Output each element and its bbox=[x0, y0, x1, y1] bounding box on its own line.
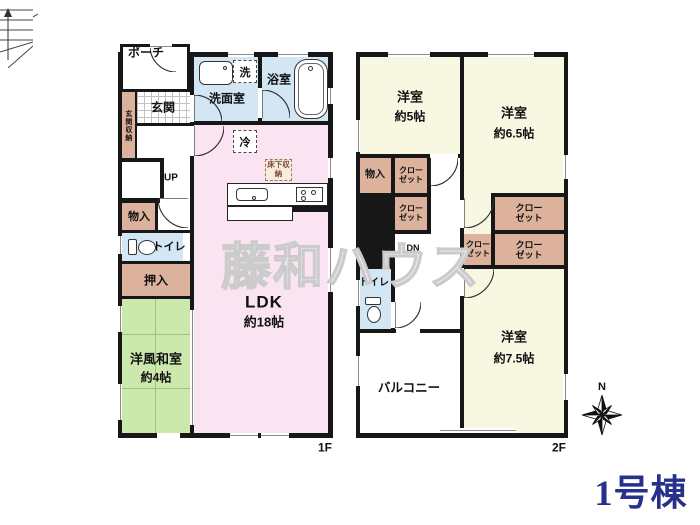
label-ldk-size: 約18帖 bbox=[244, 316, 284, 331]
door-arc bbox=[262, 90, 290, 118]
compass-north-label: N bbox=[598, 381, 606, 393]
label-storage-1f: 物入 bbox=[128, 211, 150, 223]
label-toilet-2f: トイレ bbox=[359, 277, 389, 288]
underfloor-storage-box: 床下収納 bbox=[265, 159, 292, 181]
compass-rose-icon bbox=[580, 393, 624, 437]
door-arc bbox=[464, 198, 494, 228]
label-oshiire: 押入 bbox=[144, 274, 168, 287]
tatami-line bbox=[122, 388, 190, 389]
room-yoshitsu-65 bbox=[464, 57, 564, 193]
toilet-bowl-icon bbox=[367, 306, 381, 323]
window bbox=[118, 306, 122, 332]
label-yoshitsu-75: 洋室 bbox=[501, 331, 527, 346]
burner-icon bbox=[301, 196, 306, 201]
door-arc bbox=[430, 158, 458, 186]
window bbox=[328, 88, 333, 104]
faucet-icon bbox=[308, 66, 313, 71]
door-arc bbox=[395, 302, 421, 328]
label-porch: ポーチ bbox=[128, 46, 164, 59]
label-ldk: LDK bbox=[245, 292, 283, 311]
floor-label-2f: 2F bbox=[552, 441, 566, 454]
label-washitsu: 洋風和室 bbox=[130, 353, 182, 368]
label-stairs-down: DN bbox=[407, 243, 420, 253]
label-washitsu-size: 約4帖 bbox=[141, 371, 172, 384]
label-closet: クローゼット bbox=[514, 240, 544, 260]
label-bath: 浴室 bbox=[267, 73, 291, 86]
window bbox=[388, 52, 430, 57]
label-closet: クローゼット bbox=[398, 167, 424, 185]
window bbox=[230, 433, 258, 438]
fridge-box: 冷 bbox=[233, 130, 257, 153]
door-arc bbox=[194, 126, 224, 156]
sliding-door bbox=[190, 310, 194, 425]
label-closet: クローゼット bbox=[465, 241, 491, 259]
floor-plan-canvas: 洗 冷 床下収納 ポーチ 玄関 玄関収納 UP 物入 トイレ 押入 洋風和室 約… bbox=[0, 0, 700, 525]
window bbox=[118, 236, 122, 254]
laundry-box: 洗 bbox=[233, 60, 257, 83]
window bbox=[278, 52, 308, 57]
tatami-line bbox=[122, 334, 190, 335]
label-yoshitsu-5-size: 約5帖 bbox=[395, 110, 426, 123]
door-arc bbox=[464, 268, 494, 298]
burner-icon bbox=[311, 190, 316, 195]
window bbox=[118, 384, 122, 420]
stairs-down-icon bbox=[0, 0, 33, 68]
kitchen-island bbox=[227, 206, 293, 221]
burner-icon bbox=[301, 190, 306, 195]
window bbox=[228, 52, 254, 57]
label-yoshitsu-75-size: 約7.5帖 bbox=[494, 352, 535, 365]
toilet-tank-icon bbox=[365, 297, 381, 305]
window bbox=[488, 52, 534, 57]
label-entrance-storage: 玄関収納 bbox=[124, 110, 132, 142]
floor-2f-plan: 洋室 約5帖 洋室 約6.5帖 物入 クローゼット クローゼット クローゼット … bbox=[0, 0, 700, 525]
label-toilet-1f: トイレ bbox=[153, 241, 186, 253]
label-senmen: 洗面室 bbox=[209, 92, 245, 105]
floor-label-1f: 1F bbox=[318, 441, 332, 454]
window bbox=[563, 374, 568, 400]
sink-icon bbox=[199, 61, 233, 85]
label-closet: クローゼット bbox=[514, 203, 544, 223]
drain-icon bbox=[252, 196, 256, 200]
door-arc bbox=[158, 198, 188, 228]
window bbox=[440, 428, 516, 433]
label-balcony: バルコニー bbox=[378, 381, 440, 395]
window bbox=[328, 158, 333, 178]
window bbox=[328, 248, 333, 292]
label-yoshitsu-5: 洋室 bbox=[397, 91, 423, 106]
label-yoshitsu-65: 洋室 bbox=[501, 107, 527, 122]
window bbox=[563, 155, 568, 179]
door-opening bbox=[396, 329, 420, 333]
window bbox=[356, 120, 360, 152]
label-storage-2f: 物入 bbox=[365, 169, 385, 180]
room-yoshitsu-5 bbox=[360, 57, 460, 154]
label-genkan: 玄関 bbox=[151, 101, 175, 114]
faucet-icon bbox=[223, 66, 227, 70]
stove-icon bbox=[296, 187, 323, 202]
door-opening bbox=[157, 433, 180, 438]
window bbox=[356, 356, 360, 386]
label-closet: クローゼット bbox=[398, 205, 424, 223]
building-title: 1号棟 bbox=[594, 473, 687, 513]
label-yoshitsu-65-size: 約6.5帖 bbox=[494, 127, 535, 140]
window bbox=[261, 433, 289, 438]
toilet-tank-icon bbox=[128, 239, 137, 255]
label-stairs-up: UP bbox=[164, 172, 178, 183]
